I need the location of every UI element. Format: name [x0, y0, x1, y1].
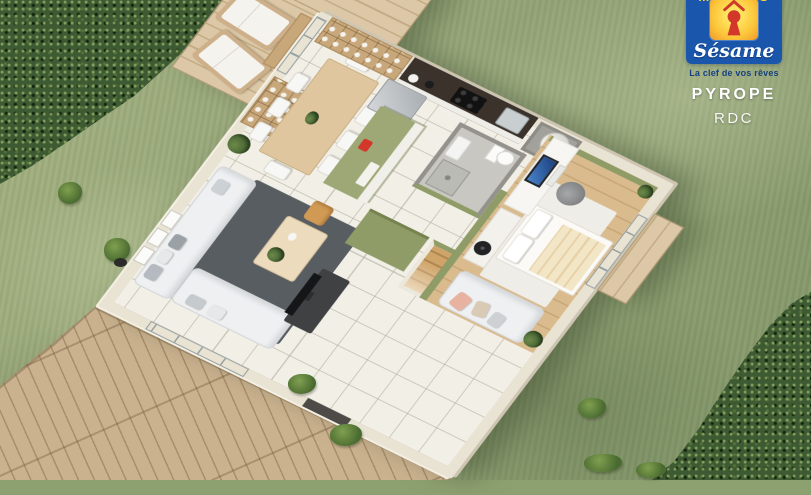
floorplan-3d-render: { "brand": { "name_top": "MAISONS", "log… — [0, 0, 811, 480]
keyhole-icon — [710, 0, 758, 40]
house-roof-icon — [725, 2, 744, 10]
model-name: PYROPE — [686, 86, 782, 104]
brand-logo: MAISONS Sésame La clef de vos rêves PYRO… — [686, 0, 782, 127]
brand-tagline: La clef de vos rêves — [686, 68, 782, 78]
floor-label: RDC — [686, 110, 782, 127]
logo-wordmark: Sésame — [686, 40, 782, 62]
plant-pot — [114, 258, 127, 267]
logo-yellow-square — [710, 0, 758, 40]
logo-box: MAISONS Sésame — [686, 0, 782, 64]
